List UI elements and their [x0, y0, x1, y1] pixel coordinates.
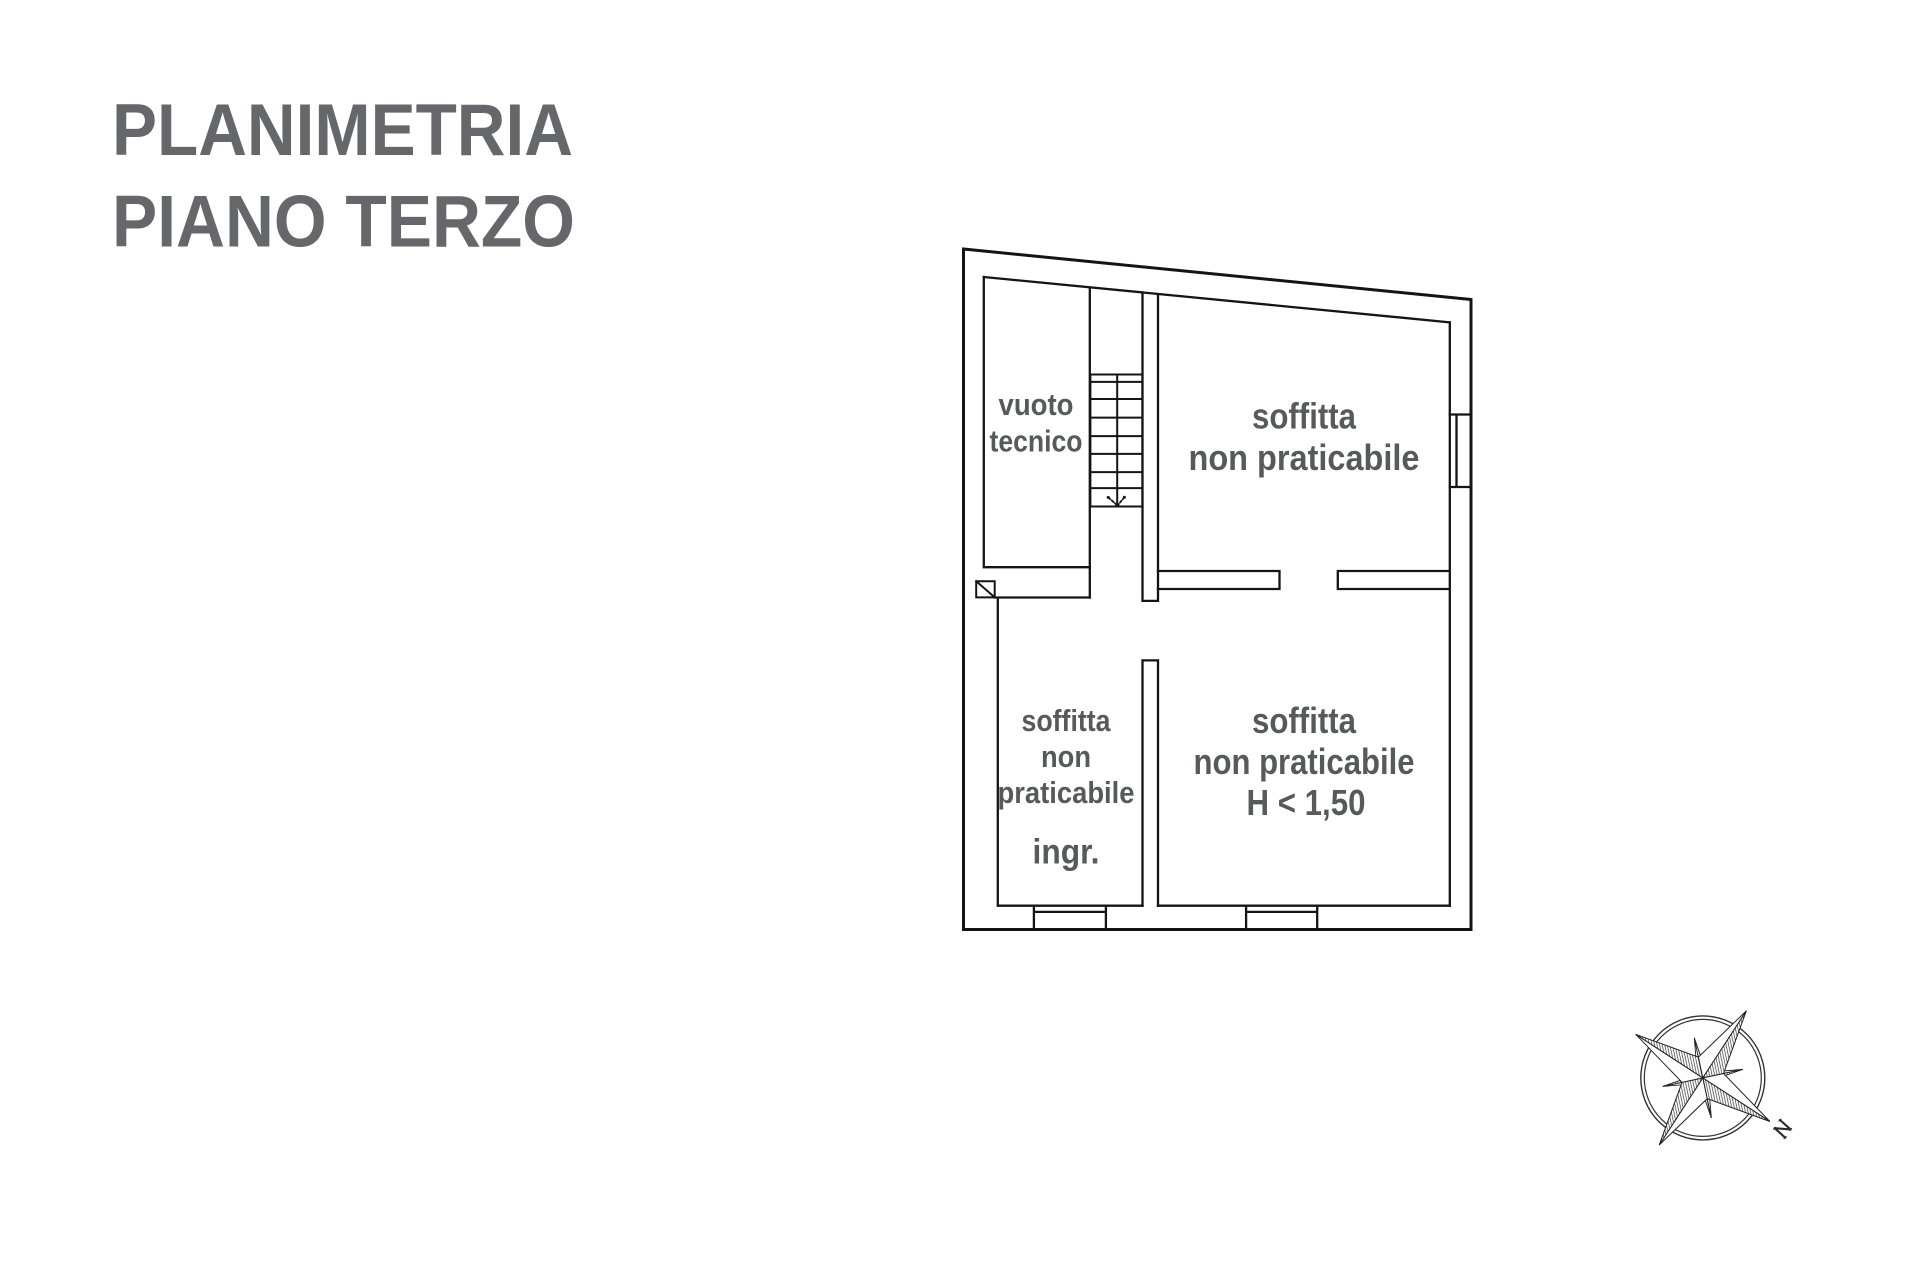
svg-text:ingr.: ingr.	[1033, 833, 1100, 872]
svg-text:soffitta: soffitta	[1022, 703, 1112, 738]
svg-text:praticabile: praticabile	[998, 775, 1135, 810]
svg-text:soffitta: soffitta	[1252, 396, 1357, 437]
svg-text:vuoto: vuoto	[999, 387, 1074, 422]
svg-text:non praticabile: non praticabile	[1189, 437, 1420, 478]
svg-text:tecnico: tecnico	[990, 423, 1083, 458]
svg-text:PIANO TERZO: PIANO TERZO	[112, 182, 575, 263]
svg-text:soffitta: soffitta	[1252, 700, 1357, 741]
svg-text:non praticabile: non praticabile	[1194, 741, 1415, 782]
svg-text:PLANIMETRIA: PLANIMETRIA	[112, 90, 573, 171]
svg-text:H < 1,50: H < 1,50	[1247, 782, 1366, 823]
svg-text:non: non	[1041, 739, 1091, 774]
